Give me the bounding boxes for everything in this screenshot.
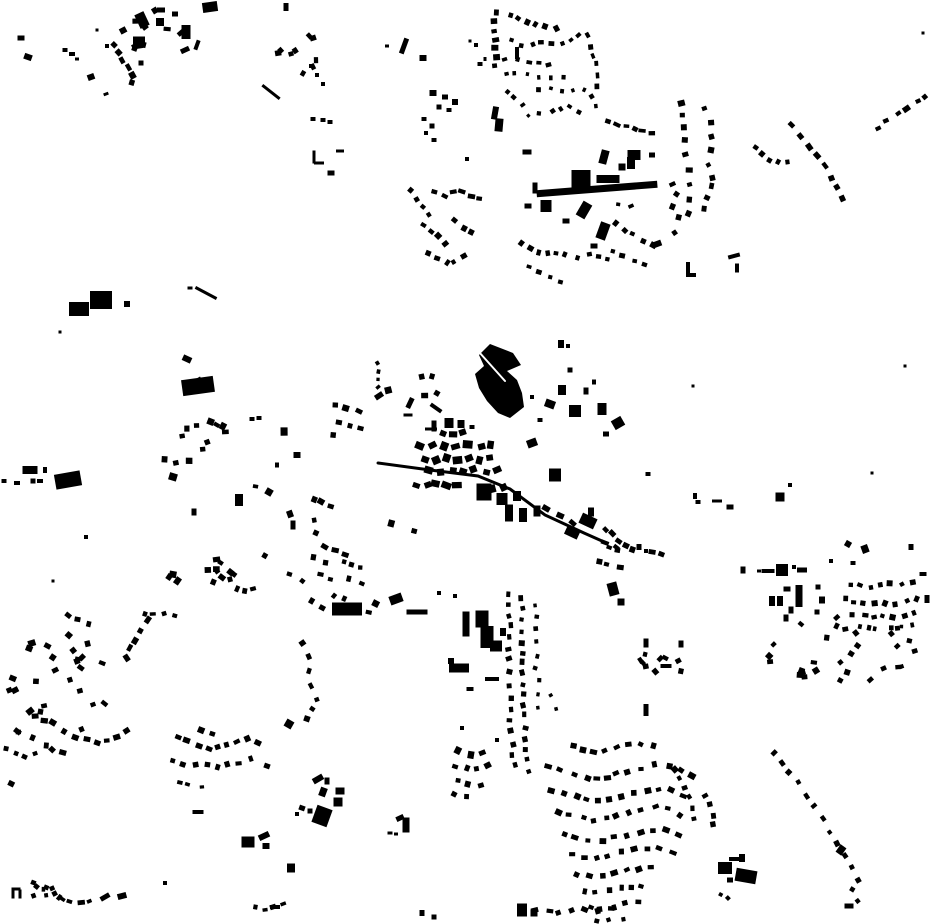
building bbox=[48, 718, 57, 727]
building bbox=[520, 651, 526, 656]
building bbox=[51, 890, 58, 897]
building bbox=[810, 660, 817, 665]
building bbox=[662, 826, 671, 834]
building bbox=[263, 843, 270, 849]
building bbox=[601, 748, 608, 754]
building bbox=[566, 812, 572, 817]
building bbox=[580, 906, 588, 913]
building bbox=[649, 153, 655, 158]
building bbox=[193, 810, 204, 814]
building bbox=[829, 559, 833, 563]
building bbox=[448, 658, 454, 664]
building bbox=[629, 231, 635, 237]
building bbox=[728, 253, 741, 260]
building bbox=[892, 601, 898, 607]
building bbox=[452, 764, 459, 770]
building bbox=[404, 414, 413, 417]
building bbox=[618, 599, 625, 606]
building bbox=[483, 761, 492, 769]
building bbox=[341, 559, 346, 565]
building bbox=[32, 713, 39, 719]
building bbox=[598, 149, 609, 165]
building bbox=[505, 89, 511, 95]
building bbox=[200, 785, 205, 789]
building bbox=[765, 652, 774, 661]
building bbox=[195, 286, 218, 300]
building bbox=[64, 631, 73, 640]
building bbox=[548, 693, 553, 698]
building bbox=[405, 397, 414, 409]
building bbox=[597, 906, 603, 912]
building bbox=[833, 622, 840, 629]
building bbox=[254, 739, 262, 747]
building bbox=[11, 686, 20, 694]
building bbox=[618, 793, 625, 800]
building bbox=[287, 864, 295, 873]
building bbox=[451, 217, 458, 224]
building bbox=[686, 167, 693, 172]
building bbox=[505, 505, 513, 522]
building bbox=[314, 162, 324, 165]
building bbox=[546, 909, 553, 914]
building bbox=[902, 104, 911, 113]
building bbox=[510, 741, 517, 748]
building bbox=[621, 917, 626, 922]
building bbox=[638, 883, 644, 888]
building bbox=[679, 641, 684, 648]
building bbox=[547, 787, 555, 794]
building bbox=[311, 117, 316, 121]
building bbox=[597, 175, 620, 183]
building bbox=[871, 614, 877, 619]
building bbox=[453, 746, 462, 755]
building bbox=[335, 419, 342, 425]
building bbox=[224, 761, 231, 768]
building bbox=[512, 71, 516, 75]
building bbox=[3, 746, 9, 752]
building bbox=[644, 787, 652, 794]
building bbox=[701, 106, 707, 112]
building bbox=[491, 18, 498, 24]
building bbox=[631, 790, 637, 796]
building bbox=[179, 433, 185, 438]
building bbox=[105, 44, 109, 48]
building bbox=[606, 581, 619, 596]
building bbox=[638, 767, 643, 771]
building bbox=[425, 250, 432, 257]
building bbox=[735, 868, 758, 884]
building bbox=[426, 212, 432, 218]
building bbox=[261, 84, 280, 100]
building bbox=[388, 832, 393, 835]
building bbox=[904, 598, 910, 604]
building bbox=[195, 742, 203, 749]
building bbox=[866, 625, 871, 631]
building bbox=[308, 809, 313, 814]
building bbox=[862, 613, 869, 618]
building bbox=[682, 137, 688, 143]
building bbox=[693, 493, 697, 499]
building bbox=[519, 629, 523, 634]
building bbox=[536, 692, 540, 697]
building bbox=[21, 753, 28, 759]
building bbox=[523, 747, 528, 752]
building bbox=[264, 487, 274, 497]
building bbox=[434, 232, 442, 240]
building bbox=[837, 659, 844, 666]
building bbox=[592, 890, 597, 895]
building bbox=[485, 677, 499, 681]
building bbox=[675, 657, 682, 664]
building bbox=[442, 453, 452, 463]
building bbox=[453, 594, 457, 598]
building bbox=[594, 61, 598, 66]
building bbox=[54, 470, 82, 489]
building bbox=[83, 736, 91, 742]
building bbox=[75, 58, 79, 61]
building bbox=[219, 422, 228, 431]
building bbox=[537, 111, 542, 116]
building bbox=[519, 905, 525, 910]
building bbox=[411, 528, 418, 534]
building bbox=[412, 482, 420, 489]
building bbox=[44, 893, 48, 898]
building bbox=[309, 706, 316, 712]
building bbox=[132, 19, 138, 24]
building bbox=[701, 792, 708, 799]
building bbox=[312, 529, 319, 536]
building bbox=[51, 667, 59, 674]
building bbox=[686, 273, 696, 277]
building bbox=[600, 873, 606, 879]
building bbox=[77, 664, 85, 672]
building bbox=[90, 291, 112, 309]
building bbox=[253, 484, 259, 489]
building bbox=[375, 384, 381, 389]
building bbox=[849, 864, 855, 870]
building bbox=[739, 854, 745, 862]
building bbox=[611, 416, 626, 430]
building bbox=[192, 509, 197, 516]
building bbox=[156, 18, 164, 26]
building bbox=[128, 79, 135, 86]
building bbox=[357, 425, 364, 431]
building bbox=[492, 37, 500, 43]
building bbox=[150, 612, 156, 616]
building bbox=[323, 560, 329, 566]
building bbox=[18, 36, 25, 41]
building bbox=[784, 615, 789, 622]
building bbox=[685, 210, 692, 218]
building bbox=[327, 503, 334, 509]
building bbox=[421, 455, 430, 464]
building bbox=[168, 472, 178, 481]
building bbox=[348, 562, 354, 568]
building bbox=[394, 833, 398, 836]
building bbox=[585, 872, 593, 879]
building bbox=[139, 61, 144, 66]
building bbox=[87, 73, 96, 81]
building bbox=[422, 117, 427, 121]
building bbox=[558, 385, 566, 395]
building bbox=[622, 900, 629, 906]
building bbox=[588, 508, 594, 517]
building bbox=[507, 727, 514, 734]
building bbox=[582, 87, 587, 92]
building bbox=[452, 456, 462, 465]
building bbox=[497, 493, 508, 505]
building bbox=[63, 48, 68, 52]
building bbox=[328, 120, 333, 124]
building bbox=[778, 759, 785, 767]
building bbox=[420, 222, 427, 228]
building bbox=[258, 831, 271, 841]
building bbox=[418, 373, 425, 380]
building bbox=[64, 612, 72, 620]
building bbox=[612, 812, 620, 820]
building bbox=[407, 610, 428, 615]
building bbox=[43, 642, 51, 650]
building bbox=[669, 203, 676, 211]
building bbox=[608, 529, 616, 538]
building bbox=[623, 768, 630, 775]
building bbox=[524, 757, 529, 762]
building bbox=[173, 460, 179, 466]
building bbox=[192, 762, 199, 768]
building bbox=[534, 639, 538, 644]
building bbox=[170, 758, 176, 764]
building bbox=[60, 728, 67, 736]
building bbox=[888, 630, 895, 637]
building bbox=[430, 403, 443, 414]
building bbox=[450, 791, 457, 798]
building bbox=[172, 12, 178, 17]
building bbox=[124, 301, 130, 307]
building bbox=[242, 837, 255, 848]
building bbox=[420, 204, 426, 210]
building bbox=[571, 88, 575, 93]
building bbox=[824, 634, 830, 640]
building bbox=[437, 105, 442, 110]
building bbox=[312, 774, 325, 785]
building bbox=[414, 441, 425, 451]
building bbox=[661, 655, 668, 662]
building bbox=[520, 702, 526, 709]
building bbox=[646, 472, 651, 476]
building bbox=[501, 57, 507, 62]
building bbox=[680, 113, 685, 118]
building bbox=[521, 691, 527, 696]
building bbox=[429, 373, 435, 380]
building bbox=[376, 378, 379, 382]
building bbox=[816, 585, 821, 590]
building bbox=[508, 622, 513, 628]
building bbox=[210, 578, 217, 585]
building bbox=[554, 707, 558, 711]
building bbox=[310, 554, 316, 561]
building bbox=[922, 32, 925, 35]
building bbox=[492, 63, 497, 68]
building bbox=[576, 109, 582, 115]
building bbox=[384, 386, 392, 394]
building bbox=[566, 344, 570, 348]
building bbox=[269, 904, 276, 911]
building bbox=[644, 549, 648, 553]
building bbox=[506, 591, 510, 597]
building bbox=[796, 132, 804, 140]
building bbox=[78, 726, 85, 733]
building bbox=[629, 546, 636, 554]
building bbox=[507, 634, 512, 640]
building bbox=[197, 726, 205, 734]
building bbox=[49, 653, 57, 661]
building bbox=[425, 428, 437, 431]
building bbox=[341, 404, 349, 412]
building bbox=[321, 118, 326, 122]
building bbox=[518, 595, 523, 601]
building bbox=[642, 663, 649, 669]
building bbox=[650, 742, 657, 749]
building bbox=[614, 547, 620, 553]
building bbox=[568, 907, 575, 914]
building bbox=[48, 746, 56, 754]
building bbox=[507, 718, 513, 722]
building bbox=[374, 391, 384, 400]
building bbox=[575, 32, 581, 38]
building bbox=[522, 725, 529, 731]
building bbox=[796, 585, 803, 607]
building bbox=[248, 755, 254, 762]
building bbox=[202, 1, 218, 13]
building bbox=[180, 46, 190, 54]
building bbox=[298, 639, 306, 647]
building bbox=[32, 751, 38, 757]
building bbox=[871, 600, 878, 607]
building bbox=[681, 785, 688, 791]
building bbox=[519, 669, 525, 676]
building bbox=[541, 23, 548, 31]
building bbox=[625, 809, 632, 816]
building bbox=[243, 735, 251, 743]
building bbox=[582, 888, 587, 895]
building bbox=[113, 733, 121, 740]
building bbox=[376, 369, 380, 374]
building bbox=[590, 53, 595, 59]
building bbox=[185, 782, 191, 787]
building bbox=[669, 181, 676, 187]
building bbox=[598, 403, 607, 415]
building bbox=[671, 229, 678, 236]
building bbox=[449, 431, 457, 437]
building bbox=[200, 447, 206, 452]
building bbox=[469, 40, 472, 43]
building bbox=[476, 196, 482, 201]
building bbox=[899, 581, 905, 587]
building bbox=[242, 588, 248, 594]
building bbox=[875, 125, 882, 131]
building bbox=[460, 252, 468, 260]
building bbox=[553, 24, 561, 32]
building bbox=[330, 432, 336, 438]
building bbox=[467, 228, 474, 235]
building bbox=[358, 565, 363, 570]
building bbox=[708, 133, 715, 140]
building bbox=[478, 62, 483, 66]
building bbox=[235, 494, 243, 506]
building bbox=[833, 183, 840, 191]
building bbox=[548, 41, 554, 46]
building bbox=[541, 200, 552, 212]
building bbox=[849, 612, 854, 617]
building bbox=[161, 611, 167, 617]
building bbox=[648, 549, 656, 555]
building bbox=[421, 393, 428, 398]
building bbox=[71, 734, 79, 742]
building bbox=[69, 647, 77, 655]
building bbox=[103, 92, 109, 97]
building bbox=[687, 182, 693, 187]
building bbox=[347, 423, 353, 429]
building bbox=[483, 469, 491, 476]
building bbox=[7, 780, 15, 788]
building bbox=[920, 572, 927, 576]
building bbox=[603, 432, 609, 437]
building bbox=[610, 249, 615, 254]
building bbox=[303, 715, 310, 722]
building bbox=[788, 121, 796, 129]
building bbox=[536, 61, 541, 65]
building bbox=[526, 60, 532, 65]
building bbox=[681, 124, 687, 130]
building bbox=[616, 202, 621, 206]
building bbox=[477, 443, 486, 451]
building bbox=[915, 98, 921, 104]
building bbox=[23, 53, 33, 61]
building bbox=[223, 742, 229, 749]
building bbox=[651, 668, 659, 676]
map-viewport[interactable] bbox=[0, 0, 930, 924]
building bbox=[122, 727, 130, 735]
building bbox=[9, 675, 17, 683]
building bbox=[770, 641, 776, 647]
building bbox=[581, 815, 587, 821]
building bbox=[911, 610, 917, 616]
building bbox=[86, 621, 92, 628]
building bbox=[525, 204, 532, 209]
building bbox=[669, 849, 677, 855]
building bbox=[520, 102, 526, 108]
building bbox=[442, 95, 448, 100]
building bbox=[871, 472, 874, 475]
building bbox=[320, 543, 329, 551]
building bbox=[214, 744, 221, 751]
building bbox=[233, 738, 241, 745]
building bbox=[204, 762, 210, 768]
building bbox=[629, 885, 635, 890]
building bbox=[467, 751, 474, 759]
building bbox=[588, 44, 593, 50]
building bbox=[895, 626, 900, 631]
building bbox=[205, 745, 213, 752]
building bbox=[84, 535, 88, 539]
building bbox=[588, 93, 594, 99]
building bbox=[531, 907, 539, 914]
building bbox=[621, 227, 628, 234]
building bbox=[67, 677, 73, 683]
building bbox=[375, 360, 380, 365]
building bbox=[509, 696, 514, 701]
building bbox=[52, 580, 55, 583]
